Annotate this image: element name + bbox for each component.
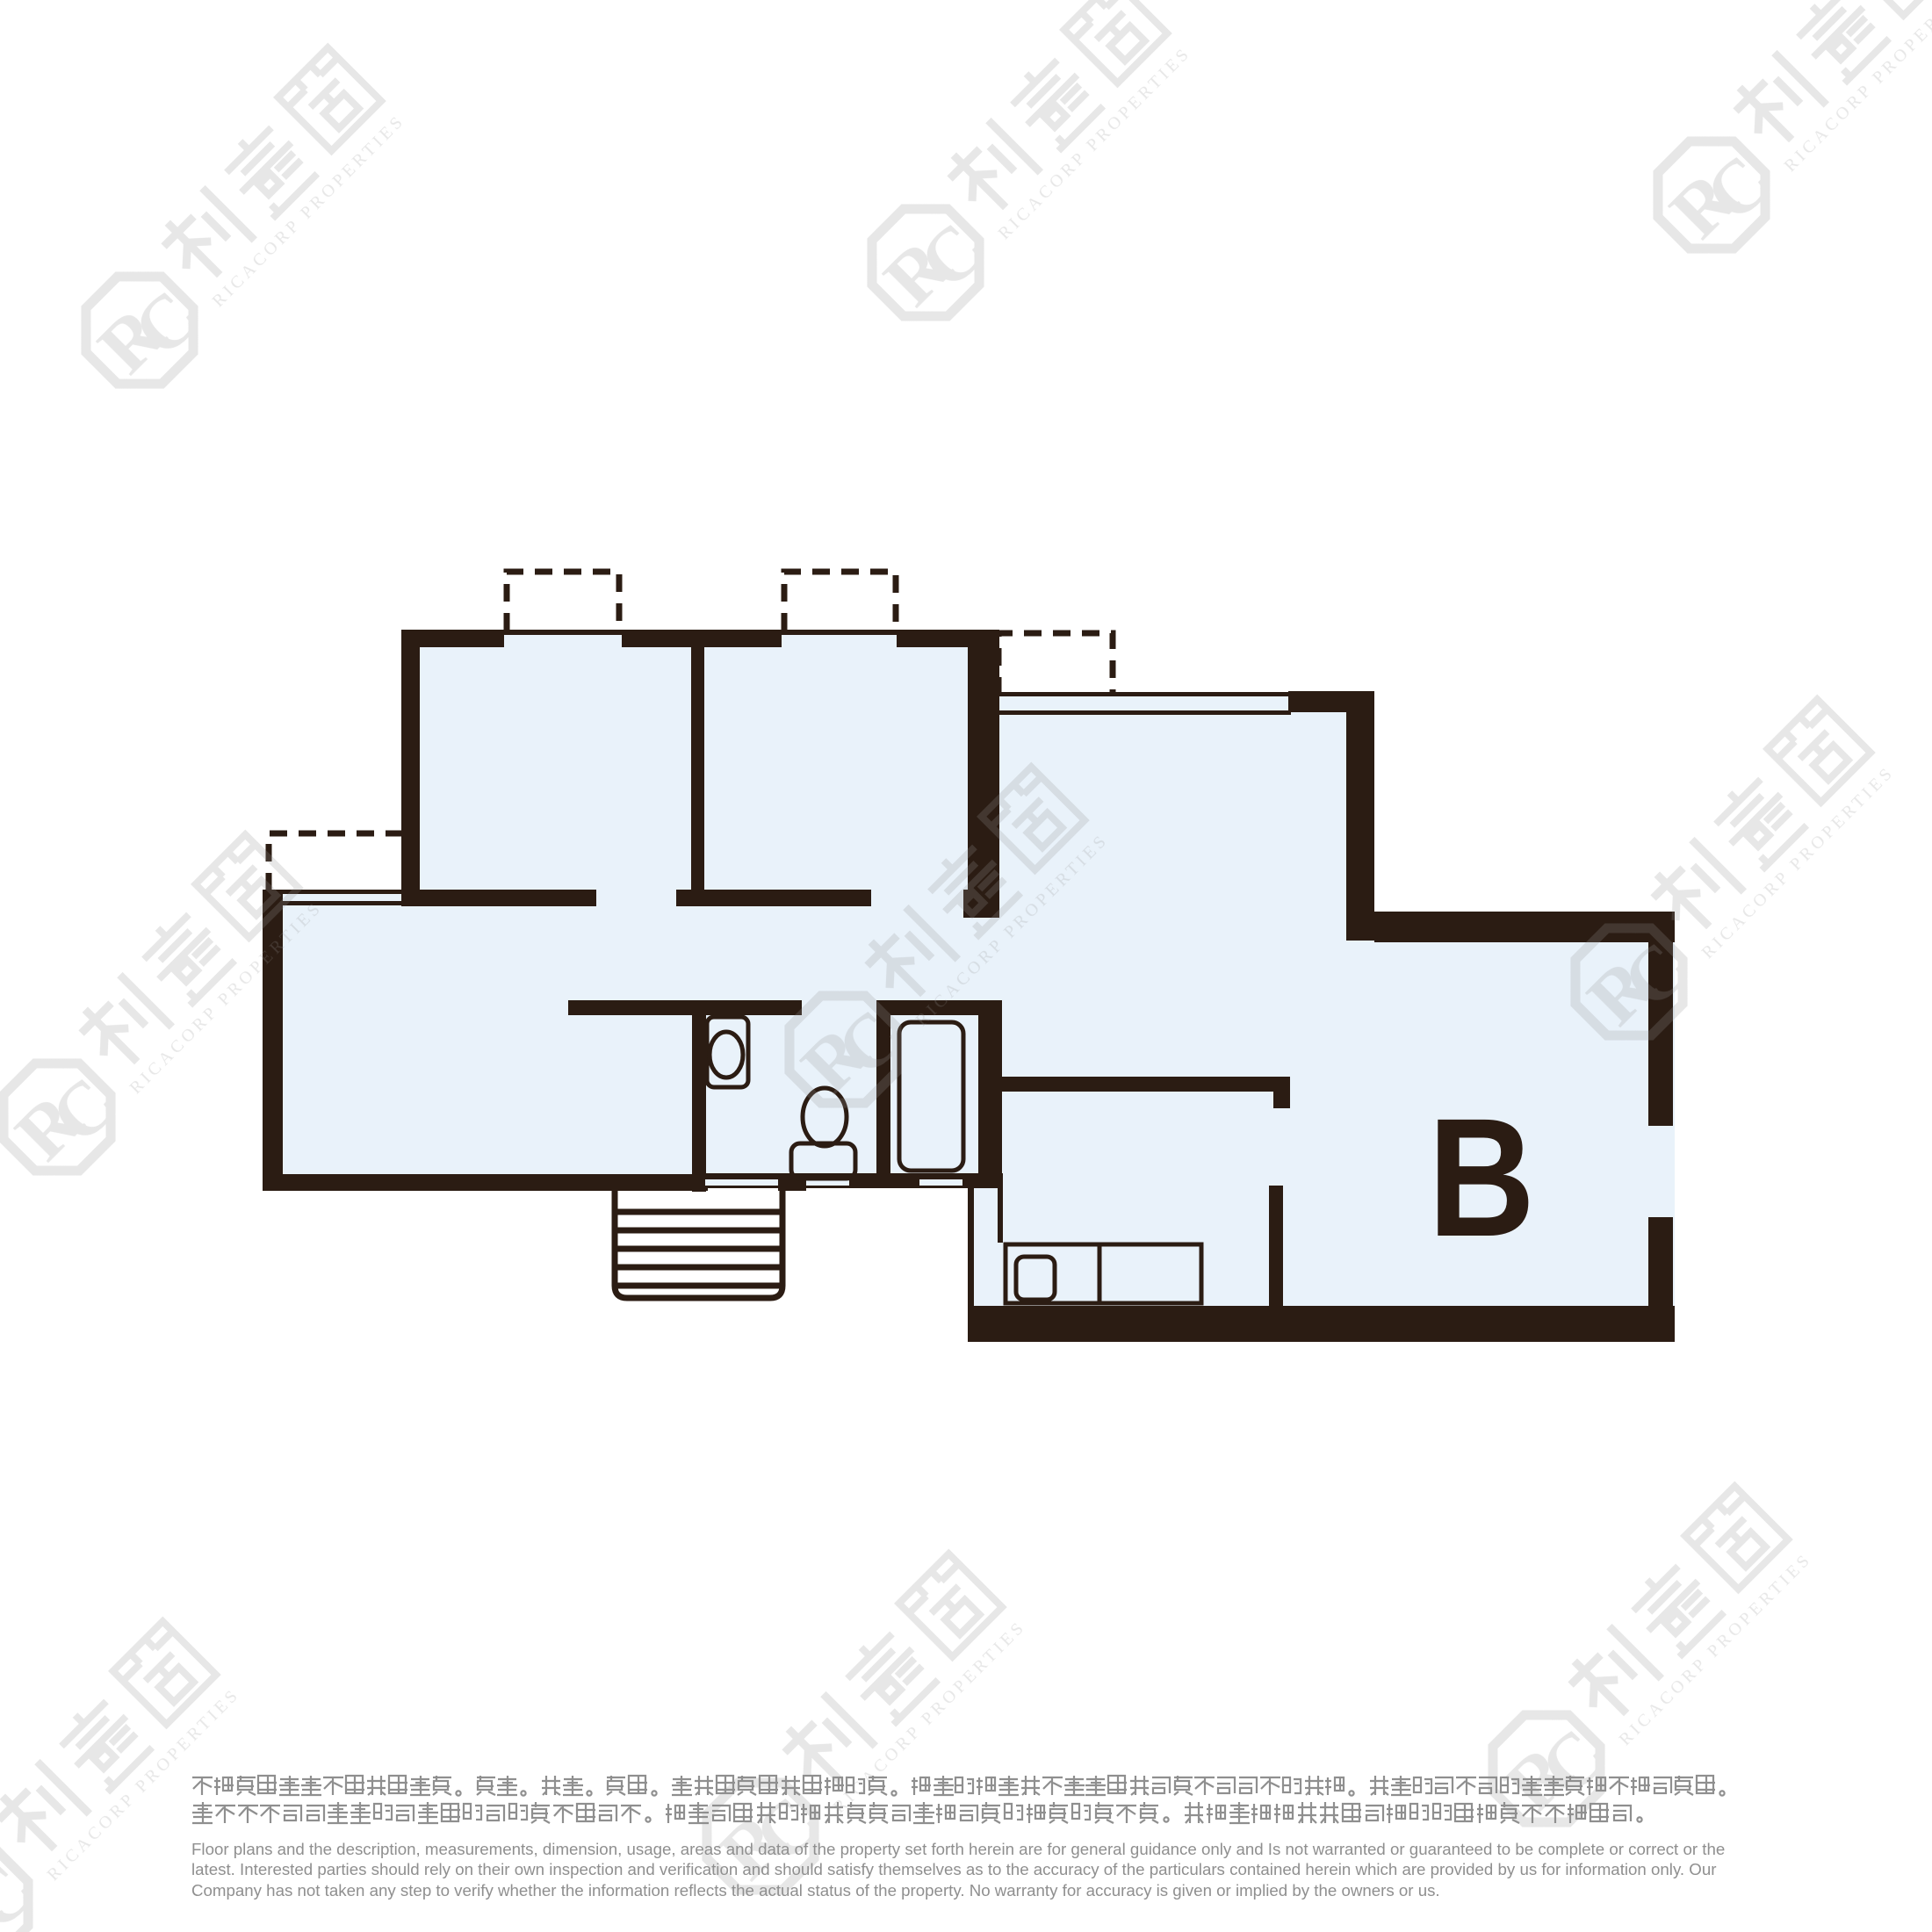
svg-text:Company has not taken any step: Company has not taken any step to verify… xyxy=(191,1881,1440,1900)
svg-text:B: B xyxy=(1428,1083,1535,1272)
svg-text:RICACORP PROPERTIES: RICACORP PROPERTIES xyxy=(1615,1549,1815,1749)
svg-text:RICACORP PROPERTIES: RICACORP PROPERTIES xyxy=(1698,762,1898,962)
svg-text:Floor plans and the descriptio: Floor plans and the description, measure… xyxy=(191,1840,1725,1858)
svg-text:RICACORP PROPERTIES: RICACORP PROPERTIES xyxy=(994,43,1194,243)
svg-text:RICACORP PROPERTIES: RICACORP PROPERTIES xyxy=(208,111,408,311)
svg-text:latest. Interested parties sho: latest. Interested parties should rely o… xyxy=(191,1860,1716,1878)
